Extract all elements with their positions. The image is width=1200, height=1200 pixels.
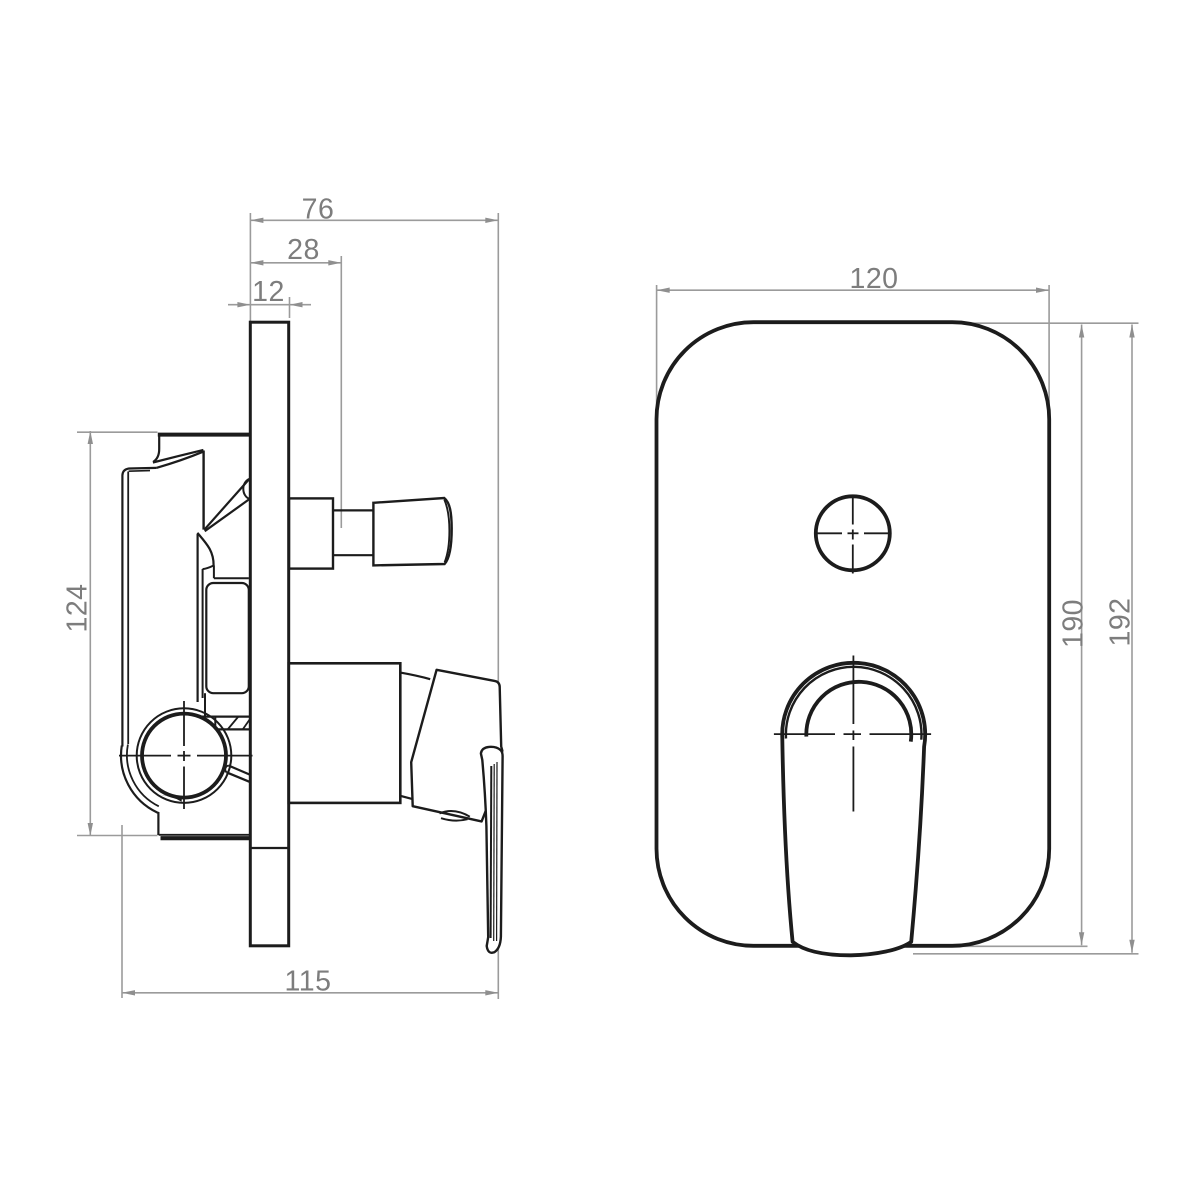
svg-text:120: 120 — [849, 263, 898, 295]
svg-text:192: 192 — [1105, 597, 1137, 646]
svg-text:76: 76 — [302, 194, 335, 226]
svg-text:124: 124 — [62, 583, 94, 632]
svg-text:190: 190 — [1058, 599, 1090, 648]
svg-text:28: 28 — [287, 234, 320, 266]
svg-text:12: 12 — [252, 276, 285, 308]
svg-text:115: 115 — [285, 966, 332, 998]
